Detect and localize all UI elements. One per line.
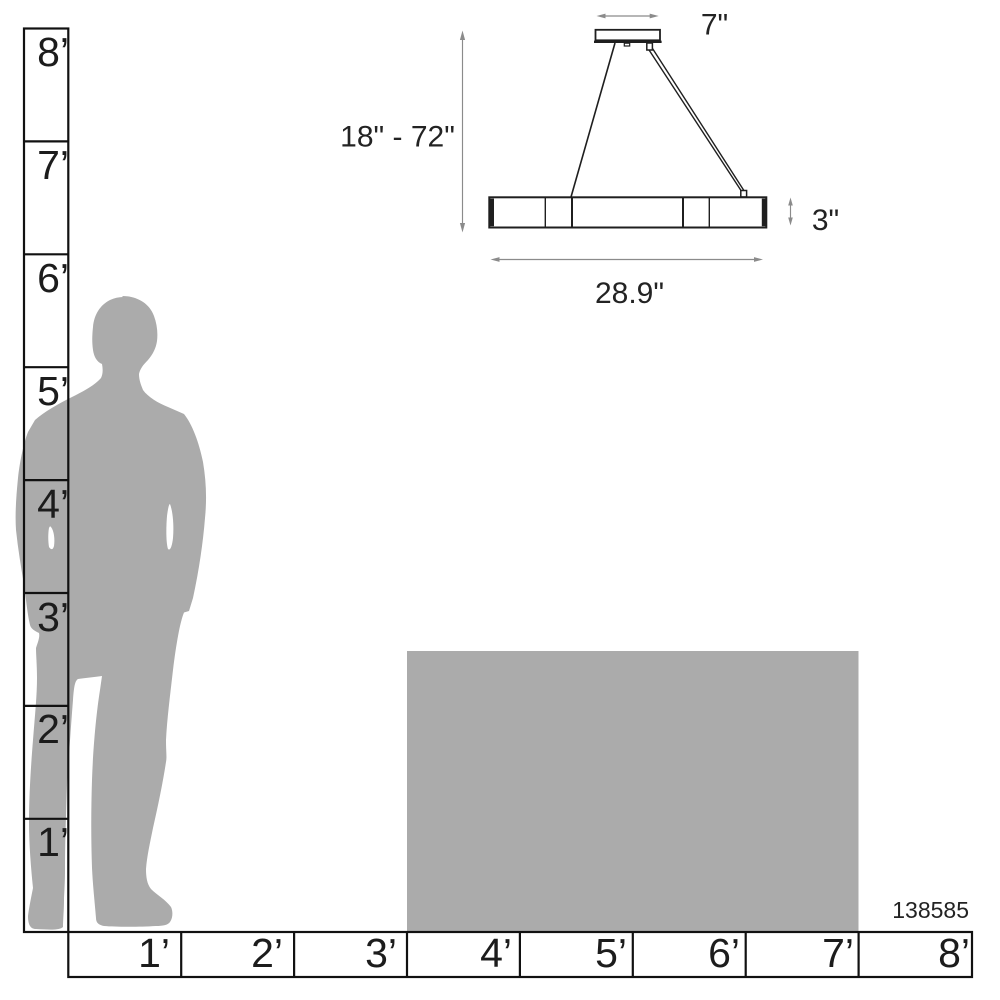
svg-text:8’: 8’ (938, 930, 970, 976)
svg-text:3": 3" (812, 204, 839, 237)
svg-text:18" - 72": 18" - 72" (340, 121, 455, 154)
svg-text:28.9": 28.9" (595, 277, 664, 310)
svg-text:3’: 3’ (365, 930, 397, 976)
svg-text:1’: 1’ (138, 930, 170, 976)
svg-text:8’: 8’ (37, 29, 69, 75)
svg-text:7": 7" (701, 9, 728, 42)
svg-text:2’: 2’ (37, 706, 69, 752)
svg-text:3’: 3’ (37, 594, 69, 640)
svg-text:6’: 6’ (708, 930, 740, 976)
svg-text:5’: 5’ (595, 930, 627, 976)
svg-text:5’: 5’ (37, 368, 69, 414)
svg-text:1’: 1’ (37, 819, 69, 865)
svg-text:138585: 138585 (892, 897, 969, 923)
svg-text:4’: 4’ (480, 930, 512, 976)
svg-text:7’: 7’ (37, 142, 69, 188)
svg-text:6’: 6’ (37, 255, 69, 301)
svg-text:2’: 2’ (251, 930, 283, 976)
svg-text:4’: 4’ (37, 481, 69, 527)
svg-text:7’: 7’ (822, 930, 854, 976)
